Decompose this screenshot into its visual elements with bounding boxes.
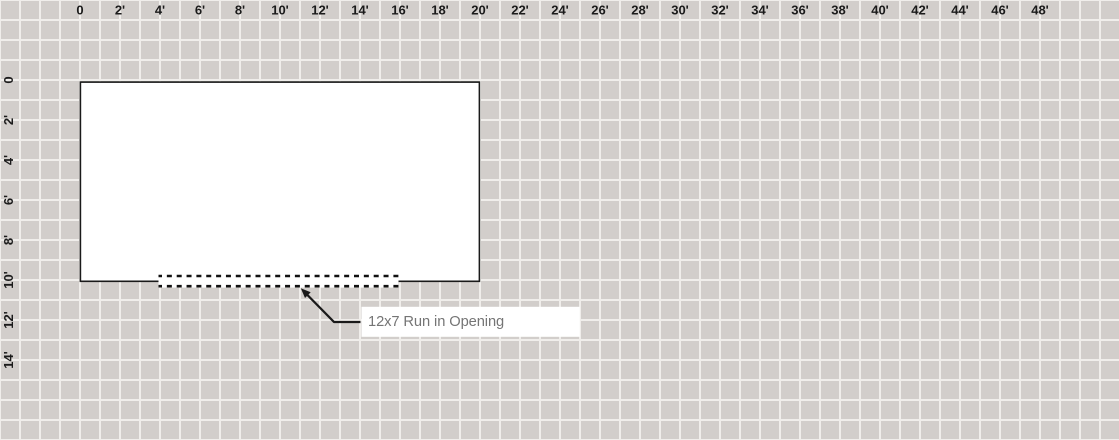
svg-text:42': 42' [911, 3, 929, 18]
svg-text:8': 8' [235, 3, 245, 18]
svg-text:44': 44' [951, 3, 969, 18]
svg-text:14': 14' [1, 351, 16, 369]
svg-text:2': 2' [115, 3, 125, 18]
svg-text:0: 0 [1, 76, 16, 83]
svg-text:46': 46' [991, 3, 1009, 18]
svg-text:22': 22' [511, 3, 529, 18]
svg-text:40': 40' [871, 3, 889, 18]
svg-text:48': 48' [1031, 3, 1049, 18]
svg-text:32': 32' [711, 3, 729, 18]
svg-text:8': 8' [1, 235, 16, 245]
svg-text:14': 14' [351, 3, 369, 18]
svg-text:26': 26' [591, 3, 609, 18]
svg-text:6': 6' [195, 3, 205, 18]
svg-text:10': 10' [1, 271, 16, 289]
svg-text:12': 12' [311, 3, 329, 18]
svg-text:12x7 Run in Opening: 12x7 Run in Opening [368, 314, 504, 330]
svg-text:20': 20' [471, 3, 489, 18]
svg-text:4': 4' [1, 155, 16, 165]
svg-text:18': 18' [431, 3, 449, 18]
svg-text:34': 34' [751, 3, 769, 18]
svg-text:36': 36' [791, 3, 809, 18]
svg-text:12': 12' [1, 311, 16, 329]
svg-text:2': 2' [1, 115, 16, 125]
svg-text:4': 4' [155, 3, 165, 18]
svg-text:16': 16' [391, 3, 409, 18]
svg-text:28': 28' [631, 3, 649, 18]
svg-text:38': 38' [831, 3, 849, 18]
svg-text:30': 30' [671, 3, 689, 18]
svg-text:6': 6' [1, 195, 16, 205]
svg-text:24': 24' [551, 3, 569, 18]
svg-text:0: 0 [76, 3, 83, 18]
svg-text:10': 10' [271, 3, 289, 18]
